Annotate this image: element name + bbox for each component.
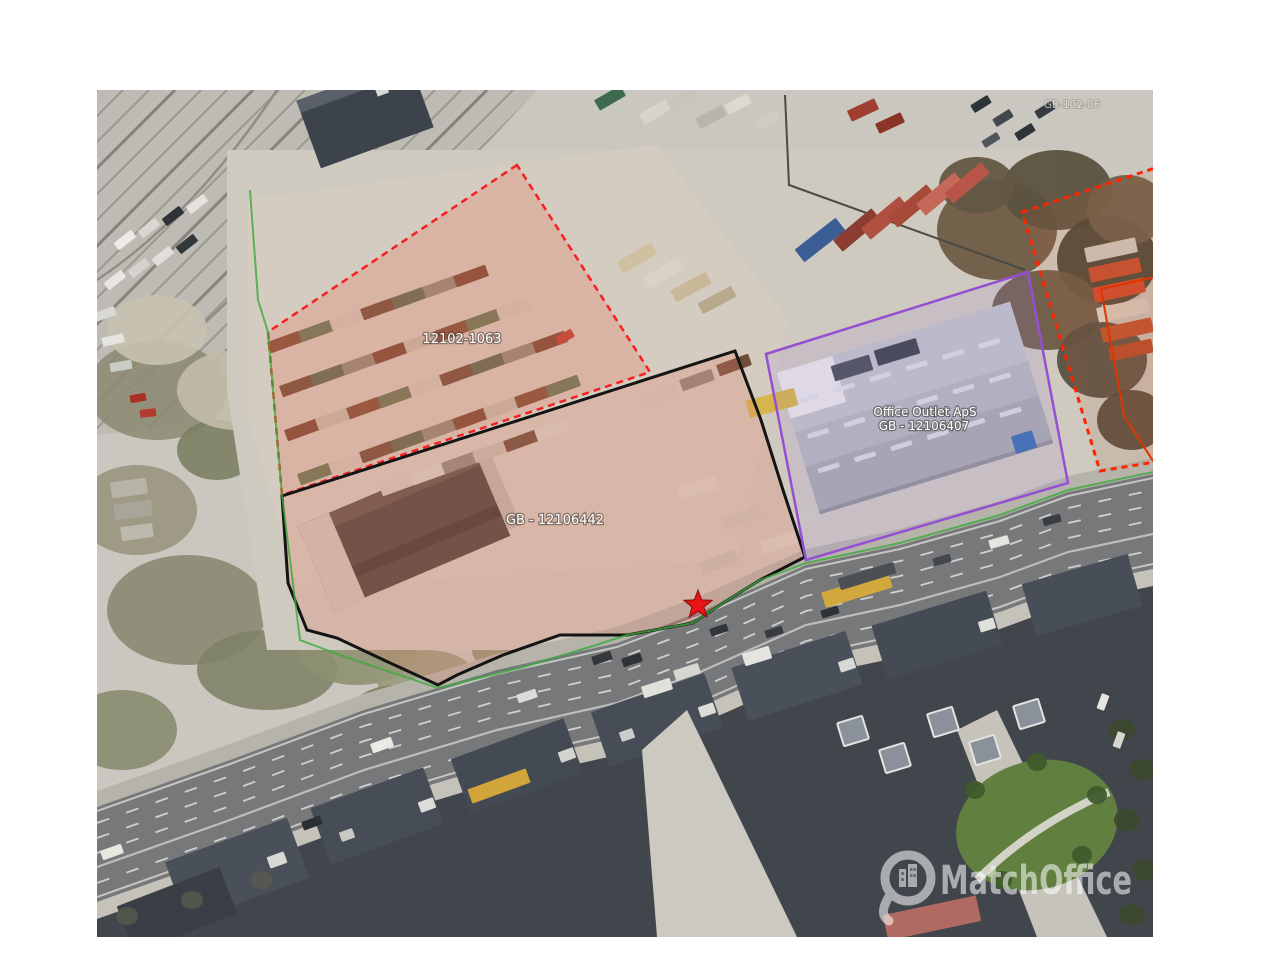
watermark-text: MatchOffice [940,858,1132,904]
map-texture [107,295,207,365]
map-texture [181,891,203,909]
plot-label-gb-12106442: GB - 12106442 [506,513,604,528]
map-texture [965,781,985,799]
map-texture [1087,786,1107,804]
screenshot-canvas: 12102-1063 GB - 12106442 Office Outlet A… [0,0,1280,960]
map-texture [1114,809,1140,831]
plot-label-office-outlet-line2: GB - 12106407 [879,419,970,433]
map-texture [116,907,138,925]
map-texture [1027,753,1047,771]
plot-label-office-outlet-line1: Office Outlet ApS [873,405,976,419]
map-texture [1119,904,1145,926]
plot-label-12102-1063: 12102-1063 [422,332,501,347]
map-texture [140,408,157,418]
plot-label-top-right: GB-102-06 [1044,99,1101,111]
map-texture [251,871,273,889]
map-image[interactable]: 12102-1063 GB - 12106442 Office Outlet A… [97,90,1153,937]
aerial-map-svg: 12102-1063 GB - 12106442 Office Outlet A… [97,90,1153,937]
